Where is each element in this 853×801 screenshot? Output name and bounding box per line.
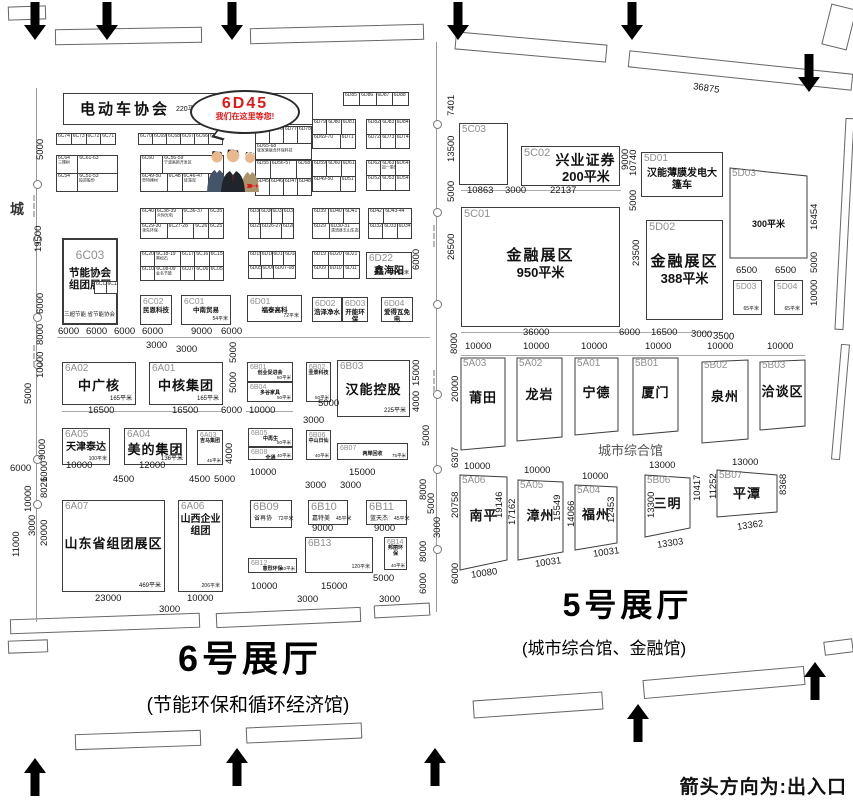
strip-cell: 6D26-27 [261,224,282,238]
dimension-label: 13300 [647,492,657,518]
booth-code: 6C54 [58,174,76,179]
booth-name: 民恩科技 [142,307,170,314]
booth-name: 泉州 [703,390,747,405]
booth-code: 5C03 [462,125,486,135]
booth-strip: 6C406C38-39众恒光电6C36-376C356C29-30领先环保6C2… [140,208,224,239]
dimension-label: 9000 [312,524,333,534]
entrance-arrow-icon [24,758,46,796]
booth-area: 165平米 [110,396,132,402]
booth-code: 6C60 [142,156,161,161]
booth-6d01: 6D01福泰高科72平米 [247,295,302,322]
dimension-label: 10000 [250,468,276,478]
strip-cell: 6D32 [369,224,383,238]
dimension-label: 5000 [36,139,46,160]
booth-code: 6D58 [298,161,310,166]
strip-row: 6D326D336D34 [369,223,411,238]
booth-code: 6A04 [127,430,150,440]
booth-strip: 6D856D866D876D88 [343,92,409,106]
dimension-label: 14066 [567,501,577,527]
booth-area: 45平米 [394,517,410,522]
booth-name: 汉能薄膜发电大篷车 [643,168,721,191]
booth-code: 6C40 [142,209,154,214]
strip-cell: 6D61 [342,161,355,176]
booth-code: 6C10 [142,267,153,272]
wall-segment [834,118,853,330]
strip-cell: 6D83 [381,120,395,134]
booth-6b10: 6B10嘉特美45平米 [308,500,348,525]
column-marker [433,545,442,554]
booth-area: 54平米 [393,271,409,276]
strip-cell: 6D47 [284,179,298,196]
dimension-label: 10000 [523,342,549,352]
booth-code: 6A07 [65,502,88,512]
strip-row: 6D096D106D11 [313,265,359,279]
dimension-label: 20000 [451,376,461,402]
booth-6d03: 6D03开能环保 [342,297,368,322]
booth-code: 6D22 [369,254,393,264]
strip-cell: 6D56-57 [271,161,298,178]
booth-code: 6D01 [250,297,270,306]
booth-code: 6B10 [311,502,337,513]
strip-cell: 6D05 [249,266,262,279]
column-marker [433,208,442,217]
booth-6a01: 6A01中核集团165平米 [149,362,223,405]
strip-cell: 6C69 [153,134,167,144]
booth-6c02: 6C02民恩科技 [140,295,172,325]
column-marker [433,120,442,129]
booth-5c02: 5C02兴业证券200平米 [521,146,620,186]
booth-name: 金融展区 [648,253,721,270]
booth-name: 嘉特美 [312,516,330,523]
strip-cell: 6D74 [396,135,409,149]
booth-code: 5B03 [762,361,785,371]
map-label: 城 [10,202,24,217]
strip-cell: 6C05 [210,267,223,281]
booth-code: 6D51 [342,177,354,182]
strip-cell: 6D37 [272,209,283,223]
grid-dash [433,225,435,247]
booth-code: 6D60 [328,161,339,166]
booth-code: 6D42 [370,209,382,214]
strip-cell: 6C12 [95,282,107,293]
booth-code: 6D19 [314,252,327,257]
strip-cell: 6D60 [327,161,341,176]
dimension-label: 10000 [24,486,34,512]
booth-code: 6C36-37 [184,209,208,214]
booth-code: 6D52 [368,176,379,181]
booth-name: 清流县玉山生态园 [331,229,355,233]
dimension-label: 6000 [86,327,107,337]
booth-code: 6C35 [210,209,222,214]
booth-code: 6C02 [143,297,163,306]
wall-segment [246,722,363,743]
booth-code: 6D35 [250,209,258,214]
booth-code: 6D20 [330,252,343,257]
booth-code: 6B07 [340,445,356,452]
booth-code: 6D72 [368,135,379,140]
dimension-label: 6500 [775,266,796,276]
booth-code: 6D09 [314,266,327,271]
strip-cell: 6C27-28 [168,224,195,238]
booth-5b03: 5B03洽谈区 [760,360,805,430]
booth-area: 72平米 [283,314,299,319]
dimension-label: 19146 [495,492,505,518]
booth-code: 6D21 [345,252,358,257]
dimension-label: 20758 [451,492,461,518]
booth-strip: 6D156D166D176D186D056D066D07-08 [248,251,296,279]
dimension-label: 3000 [340,481,361,491]
booth-code: 5A05 [520,481,543,491]
booth-name: 爱得瓦免电 [383,309,411,324]
booth-area: 50平米 [277,376,291,381]
exhibition-floor-plan: 6D45 我们在这里等您! ➸ 6号展厅 (节能环保和循环经济馆) 5号展厅 (… [0,0,853,801]
booth-code: 6D26-27 [262,224,280,229]
booth-code: 6B09 [253,502,279,513]
dimension-label: 5000 [318,399,339,409]
booth-code: 6D69-70 [314,135,339,140]
booth-code: 6C25 [210,224,222,229]
dimension-label: 10000 [251,582,277,592]
hall5-subtitle: (城市综合馆、金融馆) [468,634,740,659]
booth-code: 6D43-44 [385,209,410,214]
dimension-label: 4000 [412,391,422,412]
booth-code: 6D05 [250,266,260,271]
column-marker [433,465,442,474]
strip-cell: 6D18 [284,252,295,265]
dimension-label: 15000 [321,582,347,592]
booth-code: 6D06 [263,266,273,271]
booth-strip: 6D626D63加一策划6D646D526D536D54 [366,160,410,191]
strip-row: 6D69-706D71 [313,134,355,149]
strip-cell: 6D72 [367,135,381,149]
booth-area: 300平米 [730,220,807,229]
booth-name: 金融展区 [463,247,618,264]
strip-cell: 6D20 [329,252,345,265]
booth-area: 40平米 [277,454,291,459]
entrance-arrow-icon [24,2,46,40]
booth-name: 厦门 [634,386,677,401]
strip-cell: 6D79 [313,120,327,134]
booth-code: 6D71 [342,135,354,140]
dimension-label: 13000 [649,461,675,471]
dimension-label: 10000 [66,461,92,471]
booth-code: 6D59 [314,161,325,166]
strip-row: 6D856D866D876D88 [344,93,408,105]
dimension-label: 5000 [24,383,34,404]
booth-code: 6C73 [73,134,85,139]
dimension-label: 10000 [524,466,550,476]
entrance-arrow-icon [798,54,820,92]
strip-cell: 6C18-19黑松石 [155,252,181,266]
strip-cell: 6C08-09金名节能 [155,267,181,281]
strip-cell: 6C36-37 [183,209,210,223]
strip-row: 6C29-30领先环保6C27-286C266C25 [141,223,223,238]
map-label: 城市综合馆 [598,444,663,458]
booth-code: 6D32 [370,224,381,229]
booth-code: 5A02 [519,359,542,369]
dimension-label: 7401 [447,95,457,116]
booth-6b13: 6B13120平米 [305,537,373,573]
dimension-label: 13000 [732,458,758,468]
column-marker [433,300,442,309]
dimension-label: 17162 [508,499,518,525]
booth-code: 6D41 [345,209,358,214]
strip-cell: 6D48 [298,179,311,196]
dimension-label: 13362 [736,519,763,532]
booth-5b07: 5B07平潭 [717,470,777,517]
booth-code: 6D80 [328,120,339,125]
booth-code: 6D77 [285,127,296,132]
strip-cell: 6D29 [313,224,330,238]
strip-row: 6D49-506D51 [313,176,355,192]
booth-code: 6D84 [397,120,408,125]
booth-code: 6A05 [65,430,88,440]
dimension-label: 6000 [142,327,163,337]
dimension-label: 10417 [693,475,703,501]
booth-code: 6A01 [152,364,175,374]
booth-5c03: 5C03 [459,123,508,185]
strip-row: 6D626D63加一策划6D64 [367,161,409,175]
booth-5d02: 5D02金融展区388平米 [646,220,723,320]
booth-code: 6D38 [284,209,292,214]
highlight-booth-code: 6D45 [192,95,298,113]
dimension-label: 3000 [146,341,167,351]
booth-5c01: 5C01金融展区950平米 [461,207,620,327]
booth-code: 6D85 [345,93,358,98]
dimension-label: 6000 [114,327,135,337]
booth-code: 6D11 [345,266,358,271]
wall-segment [823,638,853,655]
strip-cell: 6D36 [260,209,271,223]
dimension-label: 4500 [113,475,134,485]
column-marker [33,500,42,509]
hall6-title: 6号展厅 [150,630,350,682]
booth-6b04: 6B04多谷家具50平米 [247,382,293,402]
strip-cell: 6C40 [141,209,156,223]
strip-row: 6D796D806D81 [313,120,355,134]
strip-cell: 6C70 [139,134,153,144]
strip-cell: 6C66 [195,134,209,144]
strip-cell: 6D46 [270,179,284,196]
booth-code: 6C68 [168,134,179,139]
strip-row: 6C406C38-39众恒光电6C36-376C35 [141,209,223,223]
booth-name: 中南贸易 [183,307,229,314]
dimension-label: 16500 [651,328,677,338]
booth-6d02: 6D02浩泽净水 [312,297,342,322]
strip-row: 6D056D066D07-08 [249,265,295,279]
dimension-label: 19500 [34,226,44,252]
booth-area: 45平米 [336,517,352,522]
dimension-label: 3000 [691,330,712,340]
dimension-label: 12000 [139,461,165,471]
booth-code: 6D56-57 [272,161,296,166]
strip-cell: 6C67 [181,134,195,144]
strip-cell: 6D15 [249,252,261,265]
booth-code: 6D79 [314,120,325,125]
dimension-label: 11252 [709,473,719,499]
strip-cell: 6D73 [381,135,395,149]
booth-name: 三棵树 [58,161,74,165]
dimension-label: 10000 [645,342,671,352]
dimension-label: 6000 [36,293,46,314]
strip-cell: 6D88 [393,93,408,105]
strip-cell: 6C48 [168,174,183,191]
booth-code: 6C15 [211,252,222,257]
booth-name: 邦丽环保 [386,546,405,558]
booth-code: 6D64 [397,161,408,166]
dimension-label: 6000 [58,327,79,337]
strip-cell: 6C38-39众恒光电 [156,209,183,223]
strip-cell: 6C64三棵树 [57,156,78,173]
booth-area: 200平米 [562,170,610,183]
booth-5a03: 5A03莆田 [461,358,505,450]
booth-code: 6C20 [142,252,153,257]
dimension-label: 6000 [221,327,242,337]
booth-name: 平潭 [718,487,776,502]
booth-code: 6C07 [182,267,193,272]
dimension-label: 5000 [810,252,820,273]
dimension-label: 10000 [707,342,733,352]
strip-cell: 6C07 [181,267,195,281]
booth-code: 6D04 [384,299,404,308]
booth-code: 6D33 [384,224,395,229]
strip-cell: 6D30-31清流县玉山生态园 [330,224,359,238]
dimension-line [461,355,805,356]
strip-cell: 6D71 [341,135,355,149]
grid-dash [33,195,35,217]
booth-code: 6D81 [343,120,354,125]
booth-name: 蓝天杰 [370,516,388,523]
dimension-label: 3000 [379,595,400,605]
strip-cell: 6D09 [313,266,329,279]
booth-code: 6A02 [65,364,88,374]
booth-name: 领先环保 [142,229,163,233]
booth-code: 6C03 [64,249,116,261]
booth-code: 6D78 [299,127,310,132]
booth-code: 6D39 [314,209,327,214]
strip-row: 6C64三棵树6C61-63 [57,156,117,173]
booth-name: 山东省组团展区 [64,537,163,552]
booth-strip: 6D826D836D846D726D736D74 [366,119,410,149]
booth-code: 6C26 [195,224,207,229]
strip-cell: 6C74 [57,134,72,144]
booth-code: 6D34 [399,224,410,229]
booth-code: 5C01 [464,209,490,220]
dimension-label: 10031 [592,546,619,559]
strip-cell: 6C06 [195,267,209,281]
booth-code: 5B06 [647,476,670,486]
booth-6b01: 6B01创业促进会50平米 [247,362,293,382]
entrance-arrow-icon [627,704,649,742]
strip-cell: 6D21 [344,252,359,265]
booth-area: 165平米 [197,396,219,402]
booth-5a01: 5A01宁德 [575,358,618,435]
booth-area: 45平米 [207,459,221,464]
booth-name: 加一策划 [382,166,392,170]
wall-segment [75,730,201,750]
entrance-arrow-icon [621,2,643,40]
strip-row: 6D256D26-276D28 [249,223,293,238]
dimension-label: 22137 [550,186,576,196]
strip-cell: 6D39 [313,209,329,223]
highlight-message: 我们在这里等您! [192,113,298,121]
booth-code: 6C11 [108,282,117,287]
strip-cell: 6D38 [283,209,293,223]
dimension-label: 15000 [349,468,375,478]
booth-area: 65平米 [784,307,800,312]
booth-name: 龙岩 [518,388,561,403]
booth-6d22: 6D22鑫海阳54平米 [366,252,412,279]
strip-row: 6C126C11 [95,282,117,293]
strip-row: 6D526D536D54 [367,175,409,190]
strip-row: 6D196D206D21 [313,252,359,265]
dimension-label: 20000 [40,520,50,546]
dimension-label: 5000 [427,493,437,514]
booth-code: 6D47 [285,179,296,184]
booth-6a07: 6A07山东省组团展区469平米 [62,500,165,592]
dimension-label: 8000 [450,333,460,354]
booth-code: 5D02 [649,222,675,233]
dimension-label: 9000 [38,439,48,460]
booth-5b01: 5B01厦门 [633,358,678,435]
map-label: 三超节能 省节能协会 [64,312,115,318]
booth-code: 5A03 [463,359,486,369]
booth-6b12: 6B12意烈环保40平米 [248,558,297,573]
booth-code: 5D01 [644,154,668,164]
strip-cell: 6C54 [57,174,78,191]
booth-name: 中广核 [64,379,134,394]
strip-cell: 6D42 [369,209,384,223]
booth-code: 6C01 [184,297,204,306]
booth-area: 50平米 [277,396,291,401]
booth-code: 6C12 [96,282,105,287]
booth-area: 40平米 [281,567,295,572]
strip-cell: 6C16 [195,252,209,266]
booth-area: 388平米 [647,272,722,285]
dimension-label: 23500 [632,240,642,266]
booth-code: 6D15 [250,252,259,257]
booth-name: 莆田 [462,391,504,406]
strip-cell: 6C68 [167,134,181,144]
wall-segment [8,639,48,653]
booth-area: 50平米 [277,441,291,446]
strip-row: 6D156D166D176D18 [249,252,295,265]
booth-5b02: 5B02泉州 [702,360,748,443]
booth-strip: 6C206C18-19黑松石6C176C166C156C106C08-09金名节… [140,251,224,281]
booth-code: 5B07 [719,471,742,481]
wall-segment [250,24,424,45]
booth-code: 6C66 [196,134,207,139]
booth-name: 电动车协会 [80,101,170,118]
dimension-label: 16454 [810,204,820,230]
booth-code: 6D10 [330,266,343,271]
booth-6b11: 6B11蓝天杰45平米 [366,500,407,525]
strip-cell: 6D07-08 [274,266,295,279]
booth-strip: 6C126C11 [94,281,118,294]
strip-cell: 6D58 [297,161,311,178]
dimension-label: 36000 [523,328,549,338]
booth-code: 5C02 [524,148,550,159]
dimension-label: 13500 [447,136,457,162]
wall-segment [216,607,362,628]
dimension-label: 10000 [581,342,607,352]
booth-6b14: 6B14邦丽环保40平米 [384,537,407,570]
booth-code: 6C48 [169,174,181,179]
booth-name: 吉马集团 [199,439,221,445]
dimension-label: 5000 [629,190,639,211]
dimension-label: 13303 [656,537,683,550]
dimension-label: 15549 [553,495,563,521]
